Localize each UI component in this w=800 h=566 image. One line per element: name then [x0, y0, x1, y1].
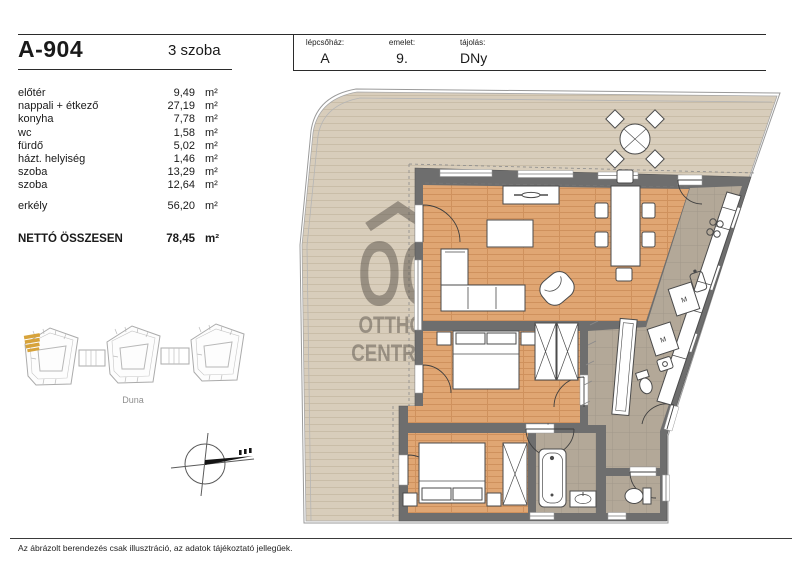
info-underline: [293, 70, 766, 71]
site-connector: [79, 350, 105, 366]
balcony-row: erkély56,20m²: [18, 200, 230, 213]
table-row: szoba13,29m²: [18, 166, 230, 179]
header-top-rule: [18, 34, 766, 35]
site-plan: Duna: [15, 320, 265, 505]
site-building-3: [191, 324, 244, 381]
wardrobe-icons: [535, 323, 578, 380]
staircase-info: lépcsőház: A: [290, 38, 360, 66]
wardrobe-icon-2: [503, 443, 527, 505]
staircase-label: lépcsőház:: [290, 38, 360, 47]
floor-plan: OC OTTHON CENTRUM: [290, 75, 800, 535]
floor-value: 9.: [367, 50, 437, 66]
room-count: 3 szoba: [168, 42, 221, 59]
table-row: előtér9,49m²: [18, 87, 230, 100]
table-row: nappali + étkező27,19m²: [18, 100, 230, 113]
bathroom-sink-icon: [570, 491, 596, 507]
bathtub-icon: [539, 449, 566, 507]
toilet-icon: [625, 488, 651, 504]
orientation-info: tájolás: DNy: [460, 38, 530, 66]
table-row: fürdő5,02m²: [18, 140, 230, 153]
disclaimer-text: Az ábrázolt berendezés csak illusztráció…: [18, 543, 293, 553]
total-row: NETTÓ ÖSSZESEN78,45m²: [18, 233, 230, 246]
site-building-1: [24, 328, 78, 385]
table-row: konyha7,78m²: [18, 113, 230, 126]
unit-id: A-904: [18, 36, 83, 63]
table-row: szoba12,64m²: [18, 179, 230, 192]
floor-label: emelet:: [367, 38, 437, 47]
site-connector: [161, 348, 189, 364]
tv-cabinet: [503, 186, 559, 204]
room-area-table: előtér9,49m² nappali + étkező27,19m² kon…: [18, 87, 230, 193]
orientation-label: tájolás:: [460, 38, 530, 47]
site-building-2: [107, 326, 160, 383]
coffee-table: [487, 220, 533, 247]
table-row: házt. helyiség1,46m²: [18, 153, 230, 166]
table-row: wc1,58m²: [18, 127, 230, 140]
compass-icon: [171, 433, 254, 496]
floorplan-sheet: A-904 3 szoba lépcsőház: A emelet: 9. tá…: [0, 0, 800, 566]
unit-underline: [18, 69, 232, 70]
footer-rule: [10, 538, 792, 539]
floor-info: emelet: 9.: [367, 38, 437, 66]
staircase-value: A: [290, 50, 360, 66]
river-label: Duna: [122, 395, 144, 405]
orientation-value: DNy: [460, 50, 530, 66]
